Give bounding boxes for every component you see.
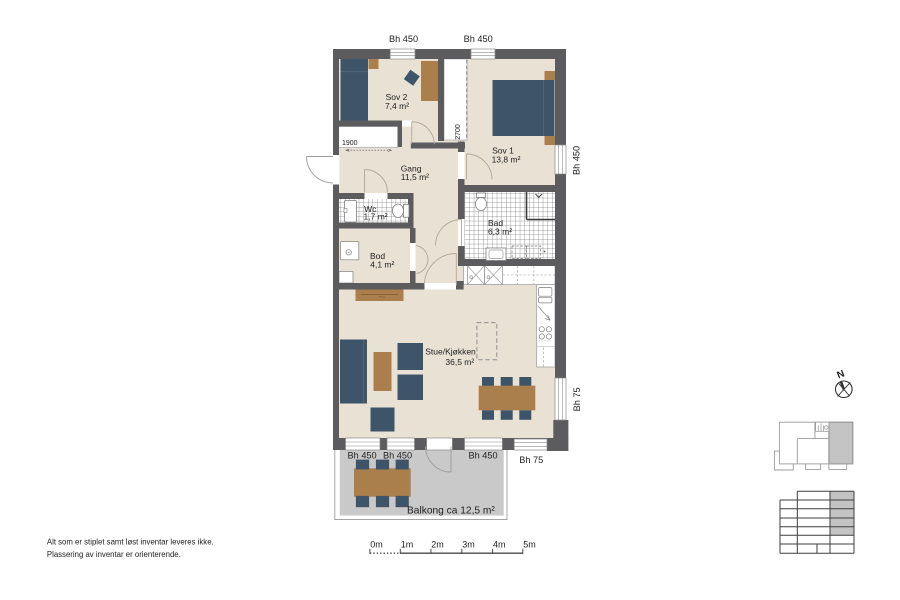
svg-text:Stue/Kjøkken: Stue/Kjøkken bbox=[425, 346, 476, 356]
svg-text:0m: 0m bbox=[370, 539, 383, 549]
svg-text:Bh 450: Bh 450 bbox=[389, 34, 418, 44]
svg-text:13,8 m²: 13,8 m² bbox=[492, 154, 521, 164]
svg-text:7,4 m²: 7,4 m² bbox=[385, 101, 409, 111]
svg-text:1m: 1m bbox=[401, 539, 414, 549]
svg-text:Bh 75: Bh 75 bbox=[519, 455, 543, 465]
svg-text:2m: 2m bbox=[431, 539, 444, 549]
svg-text:11,5 m²: 11,5 m² bbox=[401, 172, 429, 182]
svg-text:6,3 m²: 6,3 m² bbox=[488, 226, 512, 236]
svg-text:Bh 450: Bh 450 bbox=[383, 450, 412, 460]
svg-text:5m: 5m bbox=[523, 539, 536, 549]
svg-text:4m: 4m bbox=[493, 539, 506, 549]
svg-text:Balkong ca 12,5 m²: Balkong ca 12,5 m² bbox=[407, 506, 495, 517]
svg-text:Bh 450: Bh 450 bbox=[572, 146, 582, 175]
svg-text:Bh 450: Bh 450 bbox=[468, 450, 497, 460]
svg-text:Alt som er stiplet samt løst i: Alt som er stiplet samt løst inventar le… bbox=[47, 537, 214, 546]
svg-text:1,7 m²: 1,7 m² bbox=[364, 212, 388, 222]
svg-text:3m: 3m bbox=[462, 539, 475, 549]
svg-text:Bh 450: Bh 450 bbox=[348, 450, 377, 460]
svg-text:Bh 75: Bh 75 bbox=[572, 387, 582, 411]
svg-text:1900: 1900 bbox=[342, 140, 358, 147]
svg-text:4,1 m²: 4,1 m² bbox=[370, 260, 394, 270]
svg-text:Bh 450: Bh 450 bbox=[464, 34, 493, 44]
svg-text:Plassering av inventar er orie: Plassering av inventar er orienterende. bbox=[47, 550, 181, 559]
svg-text:2700: 2700 bbox=[455, 124, 462, 140]
svg-text:36,5 m²: 36,5 m² bbox=[445, 357, 474, 367]
